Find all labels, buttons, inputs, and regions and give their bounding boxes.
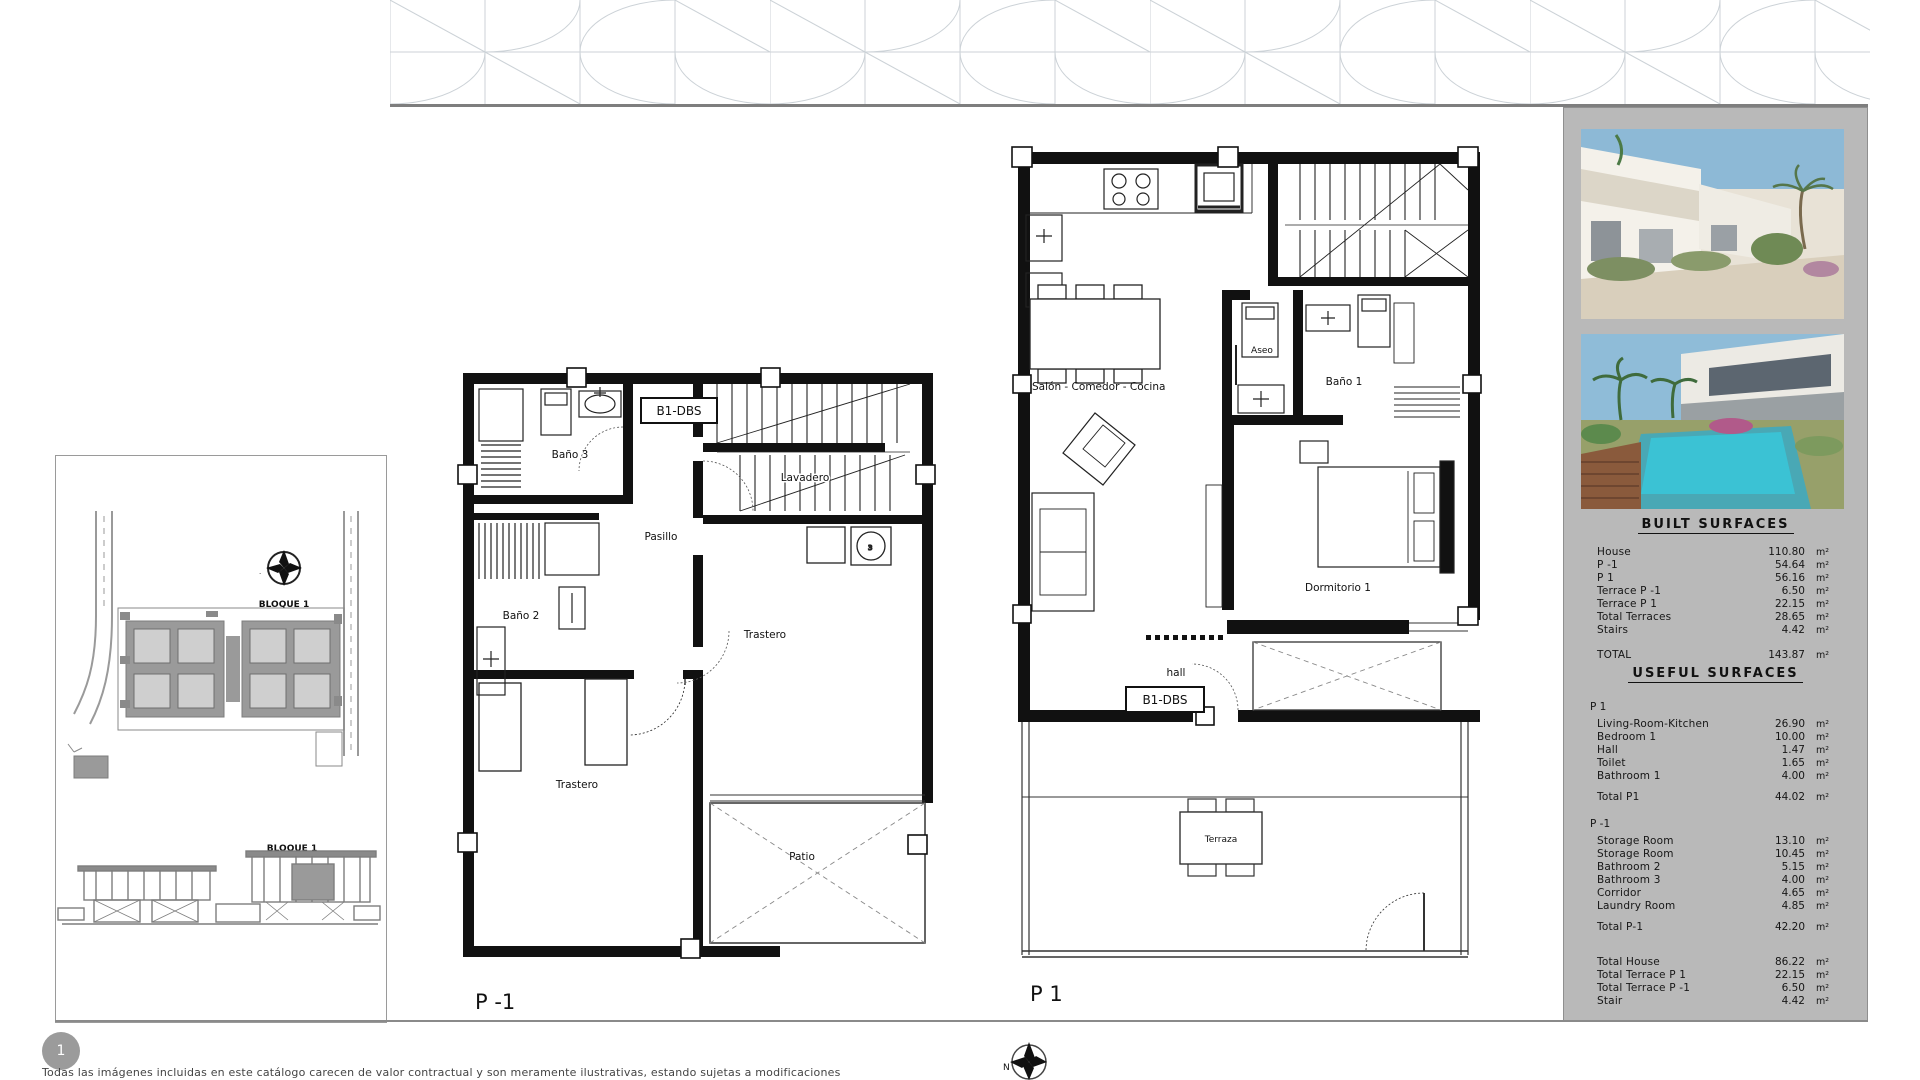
row-unit: m² — [1805, 559, 1829, 572]
row-value: 4.42 — [1759, 624, 1805, 637]
row-value: 10.00 — [1759, 731, 1805, 744]
built-surfaces-total-row: TOTAL 143.87 m² — [1564, 649, 1867, 662]
row-unit: m² — [1805, 770, 1829, 783]
row-value: 4.65 — [1759, 887, 1805, 900]
room-label-trastero-right: Trastero — [743, 629, 786, 641]
row-unit: m² — [1805, 624, 1829, 637]
row-unit: m² — [1805, 969, 1829, 982]
room-label-bano2: Baño 2 — [503, 610, 540, 622]
surfaces-sidebar: BUILT SURFACES House110.80m²P -154.64m²P… — [1563, 107, 1868, 1022]
row-label: Total Terrace P 1 — [1597, 969, 1759, 982]
built-surfaces-title: BUILT SURFACES — [1564, 517, 1867, 532]
row-unit: m² — [1805, 956, 1829, 969]
footer-rule — [55, 1020, 1868, 1022]
site-plan-drawing: . BLOQUE 1 — [56, 456, 386, 1022]
room-label-salon: Salón - Comedor - Cocina — [1032, 381, 1165, 393]
row-label: Toilet — [1597, 757, 1759, 770]
total-value: 143.87 — [1759, 649, 1805, 662]
row-label: Storage Room — [1597, 835, 1759, 848]
row-unit: m² — [1805, 718, 1829, 731]
row-label: Laundry Room — [1597, 900, 1759, 913]
built-surface-row: Terrace P 122.15m² — [1564, 598, 1867, 611]
section-header-pm1: P -1 — [1564, 818, 1867, 831]
site-elevation — [58, 851, 380, 924]
row-unit: m² — [1805, 731, 1829, 744]
floor-plan-p-minus-1: 3 B1-DBS — [455, 365, 950, 1020]
svg-text:.: . — [259, 568, 261, 576]
row-label: Bedroom 1 — [1597, 731, 1759, 744]
room-label-dormitorio1: Dormitorio 1 — [1305, 582, 1371, 594]
floor-plan-p1: lav — [1000, 145, 1500, 1015]
built-surface-row: Total Terraces28.65m² — [1564, 611, 1867, 624]
plan-title-pm1: P -1 — [475, 990, 515, 1014]
row-value: 4.85 — [1759, 900, 1805, 913]
row-unit: m² — [1805, 848, 1829, 861]
row-label: Bathroom 2 — [1597, 861, 1759, 874]
total-label: Total P1 — [1597, 791, 1759, 804]
total-label: Total P-1 — [1597, 921, 1759, 934]
built-surface-row: House110.80m² — [1564, 546, 1867, 559]
useful-surface-row: Storage Room10.45m² — [1564, 848, 1867, 861]
p1-dotted-divider — [1146, 635, 1223, 640]
grand-total-row: Total House86.22m² — [1564, 956, 1867, 969]
compass-icon: . — [259, 550, 302, 586]
render-photo-street — [1581, 129, 1844, 319]
grand-total-row: Stair4.42m² — [1564, 995, 1867, 1008]
total-unit: m² — [1805, 791, 1829, 804]
p1-stairs — [1285, 164, 1468, 277]
row-value: 22.15 — [1759, 598, 1805, 611]
pm1-unit-code: B1-DBS — [656, 404, 701, 418]
built-surface-row: Stairs4.42m² — [1564, 624, 1867, 637]
surface-tables: BUILT SURFACES House110.80m²P -154.64m²P… — [1564, 517, 1867, 1008]
grand-total-row: Total Terrace P -16.50m² — [1564, 982, 1867, 995]
row-value: 4.00 — [1759, 874, 1805, 887]
p1-bano1-fixtures — [1306, 295, 1460, 417]
pattern-tiles — [390, 0, 1870, 104]
room-label-aseo: Aseo — [1251, 346, 1273, 356]
room-label-terraza: Terraza — [1204, 835, 1238, 845]
row-value: 54.64 — [1759, 559, 1805, 572]
useful-p1-total-row: Total P1 44.02 m² — [1564, 791, 1867, 804]
room-label-hall: hall — [1167, 667, 1186, 679]
row-label: Hall — [1597, 744, 1759, 757]
useful-surfaces-pm1-table: Storage Room13.10m²Storage Room10.45m²Ba… — [1564, 835, 1867, 913]
useful-pm1-total-row: Total P-1 42.20 m² — [1564, 921, 1867, 934]
useful-surface-row: Bathroom 34.00m² — [1564, 874, 1867, 887]
room-label-trastero-big: Trastero — [555, 779, 598, 791]
row-unit: m² — [1805, 546, 1829, 559]
p1-dining-set — [1030, 285, 1160, 383]
room-label-bano1: Baño 1 — [1326, 376, 1363, 388]
p1-living-furniture — [1032, 413, 1135, 611]
pm1-unit-code-box: B1-DBS — [641, 398, 717, 423]
useful-surface-row: Living-Room-Kitchen26.90m² — [1564, 718, 1867, 731]
row-label: House — [1597, 546, 1759, 559]
row-label: P 1 — [1597, 572, 1759, 585]
row-value: 6.50 — [1759, 585, 1805, 598]
row-unit: m² — [1805, 585, 1829, 598]
p1-unit-code-box: B1-DBS — [1126, 687, 1204, 712]
p1-terrace — [1022, 722, 1468, 957]
row-unit: m² — [1805, 835, 1829, 848]
useful-surface-row: Toilet1.65m² — [1564, 757, 1867, 770]
row-value: 26.90 — [1759, 718, 1805, 731]
row-label: Living-Room-Kitchen — [1597, 718, 1759, 731]
built-surface-row: Terrace P -16.50m² — [1564, 585, 1867, 598]
row-unit: m² — [1805, 995, 1829, 1008]
room-label-bano3: Baño 3 — [552, 449, 589, 461]
row-label: P -1 — [1597, 559, 1759, 572]
room-label-patio: Patio — [789, 851, 815, 863]
row-value: 6.50 — [1759, 982, 1805, 995]
page-number-badge: 1 — [42, 1032, 80, 1070]
useful-surface-row: Hall1.47m² — [1564, 744, 1867, 757]
useful-surfaces-p1-table: Living-Room-Kitchen26.90m²Bedroom 110.00… — [1564, 718, 1867, 783]
site-blocks — [68, 608, 344, 778]
pm1-patio — [710, 795, 925, 943]
pm1-door-arcs — [579, 427, 753, 683]
row-label: Terrace P 1 — [1597, 598, 1759, 611]
row-unit: m² — [1805, 757, 1829, 770]
row-unit: m² — [1805, 887, 1829, 900]
row-label: Bathroom 1 — [1597, 770, 1759, 783]
useful-surface-row: Bathroom 14.00m² — [1564, 770, 1867, 783]
built-surfaces-table: House110.80m²P -154.64m²P 156.16m²Terrac… — [1564, 546, 1867, 637]
row-label: Total Terrace P -1 — [1597, 982, 1759, 995]
room-label-pasillo: Pasillo — [645, 531, 678, 543]
disclaimer-text: Todas las imágenes incluidas en este cat… — [42, 1066, 1142, 1079]
useful-surfaces-title: USEFUL SURFACES — [1564, 666, 1867, 681]
row-value: 86.22 — [1759, 956, 1805, 969]
row-value: 4.42 — [1759, 995, 1805, 1008]
pm1-bano2-fixtures — [477, 523, 599, 695]
row-value: 4.00 — [1759, 770, 1805, 783]
row-label: Storage Room — [1597, 848, 1759, 861]
row-label: Corridor — [1597, 887, 1759, 900]
row-label: Terrace P -1 — [1597, 585, 1759, 598]
grand-total-row: Total Terrace P 122.15m² — [1564, 969, 1867, 982]
svg-text:3: 3 — [868, 544, 872, 552]
row-unit: m² — [1805, 572, 1829, 585]
row-label: Stair — [1597, 995, 1759, 1008]
useful-surface-row: Bathroom 25.15m² — [1564, 861, 1867, 874]
row-label: Bathroom 3 — [1597, 874, 1759, 887]
useful-surface-row: Storage Room13.10m² — [1564, 835, 1867, 848]
row-value: 13.10 — [1759, 835, 1805, 848]
decorative-pattern-band — [390, 0, 1870, 104]
row-unit: m² — [1805, 874, 1829, 887]
useful-surface-row: Laundry Room4.85m² — [1564, 900, 1867, 913]
p1-walls — [1018, 152, 1480, 722]
row-unit: m² — [1805, 744, 1829, 757]
compass-north-label: N — [1003, 1063, 1010, 1073]
total-unit: m² — [1805, 921, 1829, 934]
row-value: 10.45 — [1759, 848, 1805, 861]
built-surface-row: P 156.16m² — [1564, 572, 1867, 585]
row-unit: m² — [1805, 982, 1829, 995]
render-photo-pool — [1581, 334, 1844, 509]
row-label: Total House — [1597, 956, 1759, 969]
row-value: 56.16 — [1759, 572, 1805, 585]
row-unit: m² — [1805, 900, 1829, 913]
pm1-bano3-fixtures — [479, 387, 621, 487]
p1-unit-code: B1-DBS — [1142, 693, 1187, 707]
compass-icon: N — [985, 1030, 1065, 1080]
grand-totals-table: Total House86.22m²Total Terrace P 122.15… — [1564, 956, 1867, 1008]
section-header-p1: P 1 — [1564, 701, 1867, 714]
row-value: 110.80 — [1759, 546, 1805, 559]
row-value: 22.15 — [1759, 969, 1805, 982]
row-unit: m² — [1805, 598, 1829, 611]
row-value: 1.47 — [1759, 744, 1805, 757]
room-label-lavadero: Lavadero — [781, 472, 830, 484]
pm1-trastero-storage — [479, 679, 685, 771]
total-label: TOTAL — [1597, 649, 1759, 662]
row-value: 28.65 — [1759, 611, 1805, 624]
pm1-walls — [463, 373, 933, 957]
p1-aseo-fixtures — [1236, 303, 1284, 413]
row-label: Stairs — [1597, 624, 1759, 637]
row-unit: m² — [1805, 611, 1829, 624]
total-unit: m² — [1805, 649, 1829, 662]
row-unit: m² — [1805, 861, 1829, 874]
row-value: 1.65 — [1759, 757, 1805, 770]
plan-title-p1: P 1 — [1030, 982, 1063, 1006]
built-surface-row: P -154.64m² — [1564, 559, 1867, 572]
row-label: Total Terraces — [1597, 611, 1759, 624]
useful-surface-row: Corridor4.65m² — [1564, 887, 1867, 900]
row-value: 5.15 — [1759, 861, 1805, 874]
site-plan-panel: . BLOQUE 1 — [55, 455, 387, 1023]
total-value: 42.20 — [1759, 921, 1805, 934]
total-value: 44.02 — [1759, 791, 1805, 804]
useful-surface-row: Bedroom 110.00m² — [1564, 731, 1867, 744]
pm1-laundry-appliances: 3 — [807, 527, 891, 565]
p1-void-area — [1253, 623, 1468, 710]
